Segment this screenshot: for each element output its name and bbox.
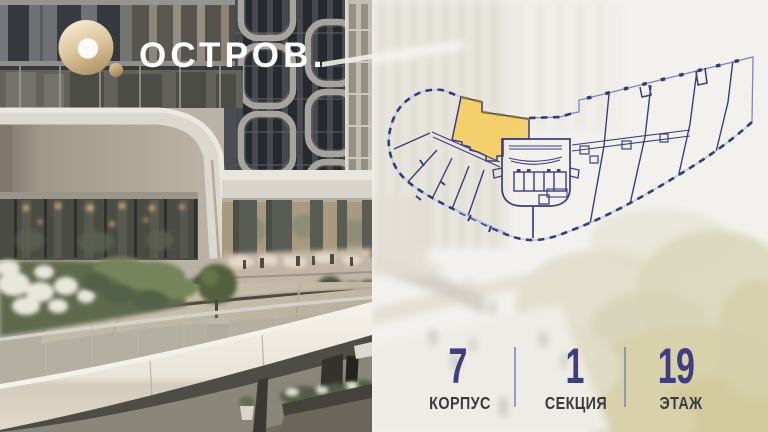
- svg-text:ОСТРОВ.: ОСТРОВ.: [139, 36, 327, 75]
- svg-text:КОРПУС: КОРПУС: [429, 394, 491, 414]
- svg-text:СЕКЦИЯ: СЕКЦИЯ: [545, 394, 607, 414]
- svg-text:19: 19: [658, 339, 695, 395]
- svg-text:ЭТАЖ: ЭТАЖ: [659, 394, 702, 414]
- svg-text:1: 1: [566, 339, 585, 395]
- svg-text:7: 7: [449, 339, 468, 395]
